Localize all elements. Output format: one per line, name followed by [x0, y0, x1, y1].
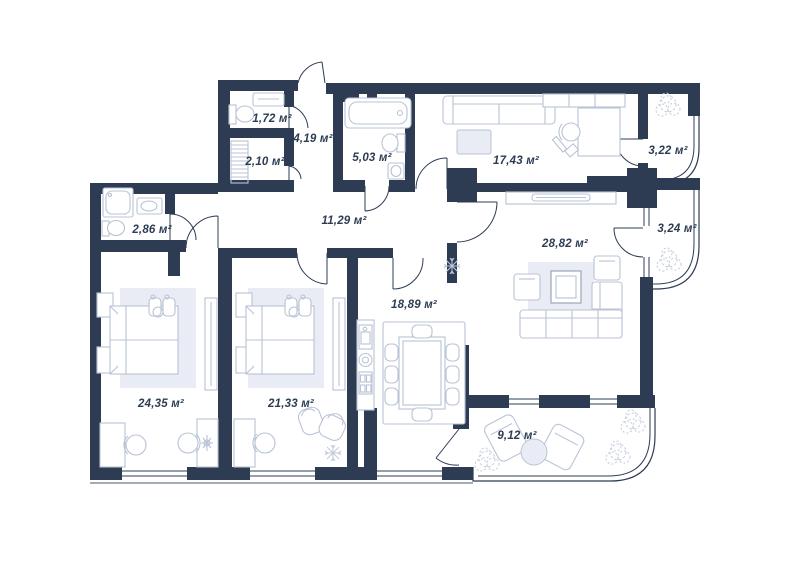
- room-label-entrance-hall: 4,19 м²: [292, 133, 333, 145]
- floor-plan-page: 1,72 м²4,19 м²2,10 м²5,03 м²17,43 м²3,22…: [0, 0, 809, 564]
- bedroom1-door: [186, 216, 218, 248]
- plant-icon: [621, 410, 645, 433]
- bedroom2-furniture: [234, 288, 349, 467]
- armchair-icon: [594, 256, 620, 280]
- balcony-bottom-furniture: [482, 413, 585, 472]
- plant-icon: [656, 93, 680, 116]
- room-label-balcony-middle: 3,24 м²: [657, 223, 697, 235]
- plants: [325, 93, 681, 471]
- toilet-icon: [382, 134, 398, 152]
- living-door: [457, 202, 497, 242]
- room-label-balcony-top: 3,22 м²: [648, 145, 688, 157]
- chair-icon: [446, 366, 459, 383]
- desk-icon: [234, 419, 255, 467]
- room-label-wc: 1,72 м²: [252, 113, 292, 125]
- room-label-corridor: 11,29 м²: [321, 215, 367, 227]
- chair-icon: [385, 366, 398, 383]
- kitchen-tall-unit: [364, 408, 377, 467]
- wardrobe-door: [289, 166, 301, 180]
- toilet-icon: [236, 106, 254, 122]
- room-label-bedroom-2: 21,33 м²: [267, 398, 315, 410]
- chair-icon: [446, 388, 459, 405]
- kitchen-furniture: [357, 320, 465, 424]
- chair-icon: [385, 344, 398, 361]
- dining-table-icon: [399, 337, 445, 409]
- room-label-bedroom-1: 24,35 м²: [137, 398, 185, 410]
- floor-plan: 1,72 м²4,19 м²2,10 м²5,03 м²17,43 м²3,22…: [0, 0, 809, 564]
- chair-icon: [412, 408, 432, 421]
- bathroom-fixtures: [345, 98, 411, 179]
- balcony-middle-door: [614, 228, 643, 257]
- chair-icon: [385, 388, 398, 405]
- bedroom1-furniture: [97, 288, 218, 467]
- shower-door: [170, 214, 196, 240]
- toilet-tank-icon: [229, 105, 236, 124]
- room-label-wardrobe: 2,10 м²: [244, 156, 285, 168]
- room-label-living-room: 28,82 м²: [541, 238, 589, 250]
- cabinet-furniture: [443, 94, 625, 157]
- coffee-table-icon: [457, 130, 491, 154]
- cabinet-door: [416, 158, 447, 189]
- kitchen-door: [393, 258, 423, 289]
- chair-icon: [126, 435, 146, 455]
- chair-icon: [562, 123, 580, 141]
- room-label-shower-room: 2,86 м²: [131, 224, 172, 236]
- round-table-icon: [521, 439, 547, 465]
- room-label-bathroom: 5,03 м²: [352, 152, 392, 164]
- desk-icon: [578, 108, 620, 156]
- living-furniture: [506, 192, 622, 338]
- cabinet-shelf-icon: [543, 94, 625, 107]
- bathroom-door: [365, 186, 389, 211]
- wc-door: [289, 105, 308, 129]
- plant-icon: [657, 248, 681, 271]
- chair-icon: [412, 325, 432, 338]
- chair-icon: [178, 433, 198, 453]
- room-label-balcony-bottom: 9,12 м²: [497, 430, 537, 442]
- room-label-kitchen: 18,89 м²: [391, 299, 438, 311]
- entrance-door: [298, 62, 325, 83]
- plant-icon: [606, 441, 630, 464]
- chair-icon: [255, 433, 275, 453]
- bedroom2-door: [297, 253, 327, 284]
- sofa-icon: [520, 310, 622, 338]
- armchair-icon: [514, 274, 540, 300]
- toilet-icon: [108, 221, 125, 236]
- balcony-bottom-door: [436, 429, 459, 465]
- room-label-cabinet-room: 17,43 м²: [493, 155, 540, 167]
- chair-icon: [446, 344, 459, 361]
- plant-icon: [325, 445, 341, 461]
- plant-icon: [444, 258, 460, 274]
- desk-icon: [100, 423, 125, 467]
